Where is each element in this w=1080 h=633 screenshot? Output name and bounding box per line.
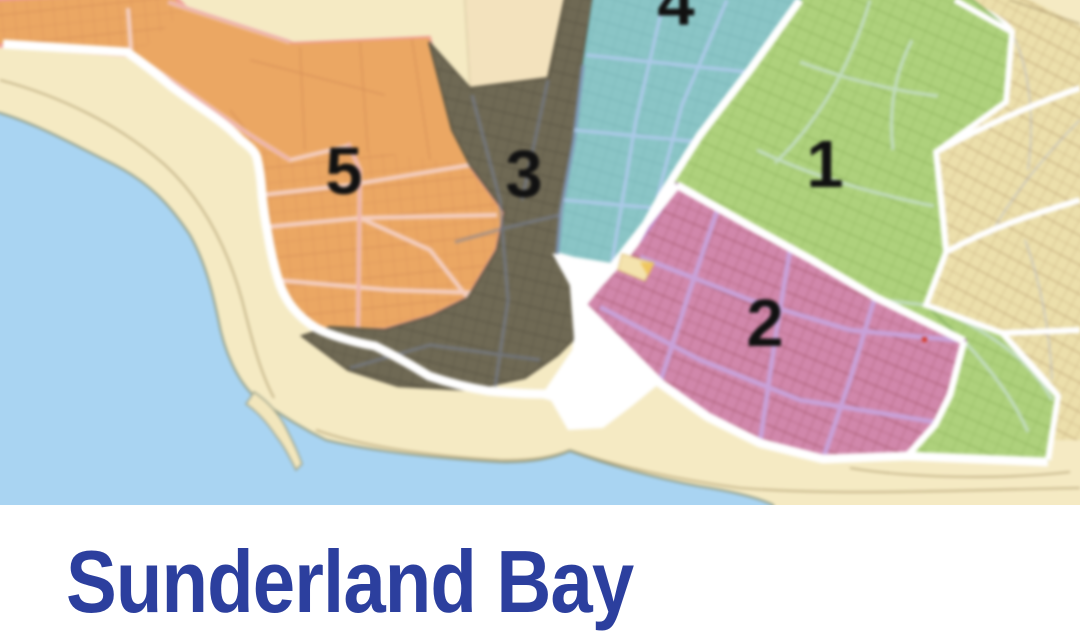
svg-text:3: 3 [505,137,542,212]
svg-text:1: 1 [806,127,843,202]
svg-text:5: 5 [325,134,362,209]
svg-text:4: 4 [657,0,694,40]
svg-text:2: 2 [746,286,783,361]
